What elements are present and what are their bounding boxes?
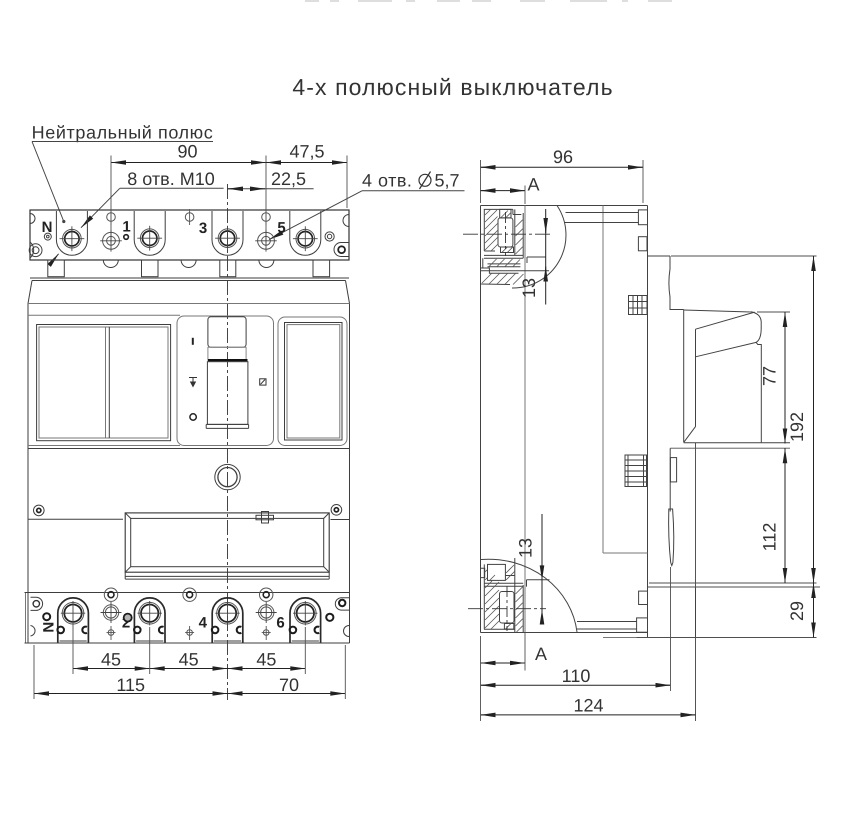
svg-text:N: N xyxy=(41,622,58,633)
svg-text:192: 192 xyxy=(787,412,807,442)
svg-text:90: 90 xyxy=(177,142,197,162)
svg-text:5,7: 5,7 xyxy=(435,171,460,191)
svg-text:13: 13 xyxy=(519,278,539,298)
svg-text:4-х полюсный выключатель: 4-х полюсный выключатель xyxy=(292,74,613,100)
svg-text:A: A xyxy=(527,175,539,195)
svg-text:45: 45 xyxy=(256,650,276,670)
svg-text:115: 115 xyxy=(116,675,145,695)
svg-text:4: 4 xyxy=(199,615,208,632)
svg-text:3: 3 xyxy=(199,220,207,237)
svg-text:77: 77 xyxy=(760,366,780,386)
svg-text:13: 13 xyxy=(516,538,536,558)
svg-text:45: 45 xyxy=(101,650,121,670)
svg-text:96: 96 xyxy=(553,147,573,167)
svg-text:8 отв. М10: 8 отв. М10 xyxy=(127,169,214,189)
svg-text:6: 6 xyxy=(276,615,284,632)
svg-text:70: 70 xyxy=(279,675,299,695)
svg-text:29: 29 xyxy=(787,601,807,621)
svg-text:22,5: 22,5 xyxy=(271,169,306,189)
svg-text:4 отв.: 4 отв. xyxy=(362,171,412,191)
svg-text:45: 45 xyxy=(179,650,199,670)
svg-text:47,5: 47,5 xyxy=(289,142,324,162)
svg-text:A: A xyxy=(535,644,547,664)
svg-text:1: 1 xyxy=(122,219,130,236)
svg-text:5: 5 xyxy=(277,220,285,237)
svg-text:112: 112 xyxy=(760,523,780,552)
svg-text:110: 110 xyxy=(562,666,591,686)
svg-text:124: 124 xyxy=(573,696,603,716)
svg-text:Нейтральный полюс: Нейтральный полюс xyxy=(32,123,214,143)
